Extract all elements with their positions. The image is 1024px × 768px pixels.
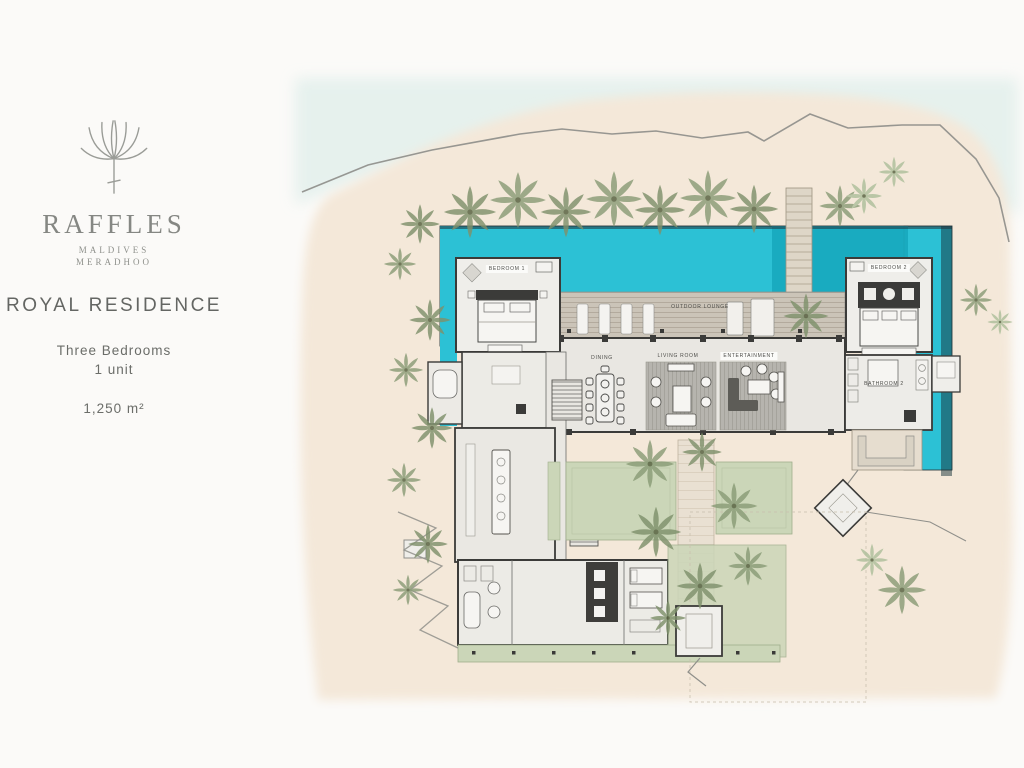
palm-tree-icon <box>784 294 829 339</box>
palm-tree-icon <box>677 563 724 610</box>
palm-tree-icon <box>730 185 779 234</box>
palm-tree-icon <box>711 483 758 530</box>
entertainment-area <box>720 362 786 430</box>
raffles-tree-logo <box>0 114 228 205</box>
bathroom-2 <box>845 355 932 430</box>
palm-tree-icon <box>878 566 927 615</box>
label-living-room: LIVING ROOM <box>657 353 698 359</box>
palm-tree-icon <box>393 575 424 606</box>
brand-location-1: MALDIVES <box>0 245 228 255</box>
palm-tree-icon <box>541 187 591 237</box>
info-panel: RAFFLES MALDIVES MERADHOO ROYAL RESIDENC… <box>0 0 228 768</box>
unit-count: 1 unit <box>0 362 228 377</box>
label-entertainment: ENTERTAINMENT <box>720 352 777 360</box>
palm-tree-icon <box>444 186 496 238</box>
staircase <box>552 380 582 420</box>
kitchen-island <box>492 450 510 534</box>
palm-tree-icon <box>387 463 421 497</box>
jetty <box>786 188 812 294</box>
palm-tree-icon <box>389 353 423 387</box>
brand-name: RAFFLES <box>0 209 228 240</box>
tree-icon <box>856 544 888 576</box>
bottom-deck <box>458 645 780 662</box>
palm-tree-icon <box>409 299 450 340</box>
label-bathroom-2: BATHROOM 2 <box>864 381 904 387</box>
palm-tree-icon <box>384 248 416 280</box>
palm-tree-icon <box>650 600 686 636</box>
main-pavilion <box>553 335 845 435</box>
bedroom-3 <box>624 560 662 645</box>
tree-icon <box>846 178 882 214</box>
palm-tree-icon <box>635 185 685 235</box>
label-bedroom-1: BEDROOM 1 <box>486 265 528 273</box>
label-bedroom-2: BEDROOM 2 <box>868 264 910 272</box>
label-outdoor-lounge: OUTDOOR LOUNGE <box>671 304 729 310</box>
palm-tree-icon <box>682 432 722 472</box>
living-room-area <box>646 362 716 430</box>
residence-area: 1,250 m² <box>0 401 228 416</box>
tree-icon <box>879 157 910 188</box>
palm-tree-icon <box>586 171 642 227</box>
palm-tree-icon <box>400 204 440 244</box>
palm-tree-icon <box>728 546 768 586</box>
tree-icon <box>987 309 1012 334</box>
label-dining: DINING <box>591 355 613 361</box>
palm-tree-icon <box>408 524 448 564</box>
bedroom-count: Three Bedrooms <box>0 343 228 358</box>
palm-tree-icon <box>960 284 992 316</box>
sunken-court <box>852 430 922 470</box>
palm-tree-icon <box>680 170 736 226</box>
brand-location-2: MERADHOO <box>0 257 228 267</box>
palm-tree-icon <box>490 172 546 228</box>
palm-tree-icon <box>626 440 675 489</box>
brochure-page: BEDROOM 1 BEDROOM 2 OUTDOOR LOUNGE DININ… <box>0 0 1024 768</box>
residence-title: ROYAL RESIDENCE <box>0 295 228 317</box>
wardrobe <box>586 562 618 622</box>
palm-tree-icon <box>631 507 681 557</box>
guest-wing <box>458 560 668 645</box>
palm-tree-icon <box>411 407 452 448</box>
